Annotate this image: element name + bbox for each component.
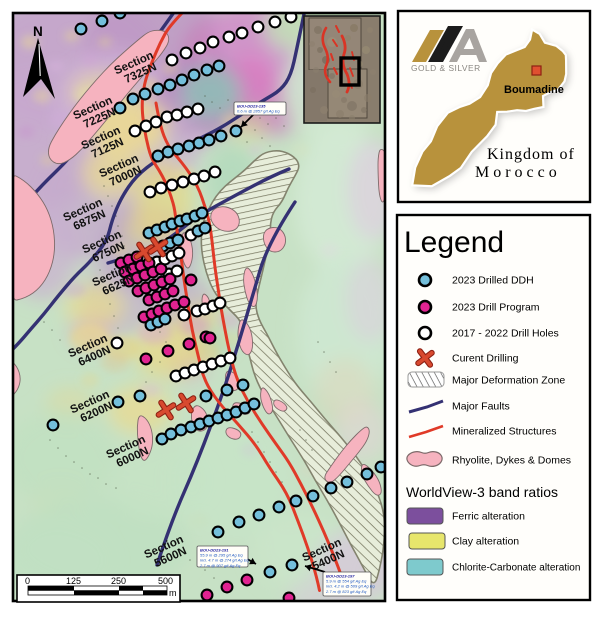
svg-text:0.6 m @ 2857 g/t Ag Eq: 0.6 m @ 2857 g/t Ag Eq <box>237 109 280 114</box>
svg-text:Major Deformation Zone: Major Deformation Zone <box>452 375 565 387</box>
svg-text:GOLD & SILVER: GOLD & SILVER <box>411 63 481 73</box>
svg-text:125: 125 <box>66 576 81 586</box>
svg-text:Chlorite-Carbonate alteration: Chlorite-Carbonate alteration <box>452 563 580 574</box>
svg-text:Rhyolite, Dykes & Domes: Rhyolite, Dykes & Domes <box>452 455 571 467</box>
svg-text:N: N <box>33 24 43 39</box>
svg-text:Boumadine: Boumadine <box>504 84 564 96</box>
svg-text:Legend: Legend <box>404 226 504 259</box>
svg-text:500: 500 <box>158 576 173 586</box>
svg-text:2.7 m @ 823 g/t Ag Eq: 2.7 m @ 823 g/t Ag Eq <box>325 589 367 594</box>
svg-text:m: m <box>169 588 177 598</box>
svg-text:2023 Drilled DDH: 2023 Drilled DDH <box>452 275 534 287</box>
svg-text:Curent Drilling: Curent Drilling <box>452 353 519 365</box>
svg-text:Ferric alteration: Ferric alteration <box>452 511 525 523</box>
svg-text:WorldView-3 band ratios: WorldView-3 band ratios <box>406 484 558 500</box>
svg-text:Major Faults: Major Faults <box>452 401 510 413</box>
svg-text:2023 Drill Program: 2023 Drill Program <box>452 302 540 314</box>
svg-text:Mineralized Structures: Mineralized Structures <box>452 426 556 438</box>
svg-text:Kingdom of: Kingdom of <box>487 146 575 163</box>
svg-text:2.7 m @ 907 g/t Ag Eq: 2.7 m @ 907 g/t Ag Eq <box>199 563 241 568</box>
svg-text:0: 0 <box>25 576 30 586</box>
svg-text:Clay alteration: Clay alteration <box>452 536 519 548</box>
svg-text:2017 - 2022 Drill Holes: 2017 - 2022 Drill Holes <box>452 328 559 340</box>
svg-text:250: 250 <box>111 576 126 586</box>
svg-text:Morocco: Morocco <box>475 164 561 181</box>
